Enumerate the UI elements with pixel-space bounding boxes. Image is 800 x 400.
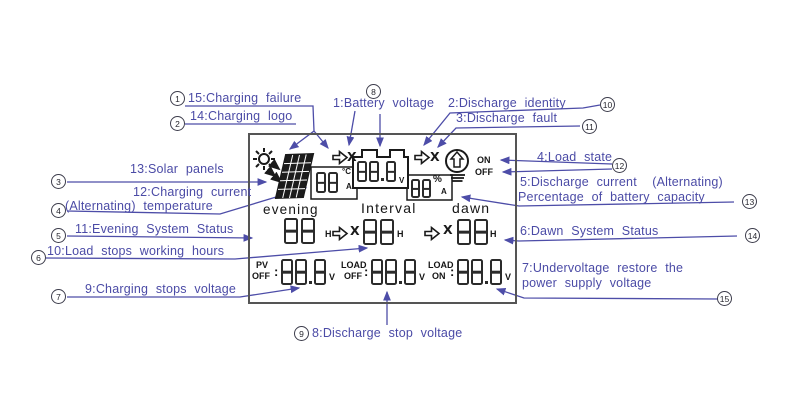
dawn-x-icon: X <box>443 222 453 237</box>
badge-15: 15 <box>717 291 732 306</box>
load-off-colon: : <box>364 264 368 279</box>
seven-segment-digit <box>457 259 469 285</box>
callout-charging-failure: 15:Charging failure <box>188 92 301 105</box>
badge-3: 3 <box>51 174 66 189</box>
seven-segment-digit <box>411 179 420 198</box>
pv-off-state: OFF <box>252 271 270 281</box>
interval-x-icon: X <box>350 223 360 238</box>
battery-volt-unit: V <box>399 176 404 185</box>
callout-discharge-current-line1: 5:Discharge current (Alternating) <box>520 176 723 189</box>
evening-hours-digits <box>284 218 315 244</box>
decimal-point <box>381 178 384 181</box>
badge-10: 10 <box>600 97 615 112</box>
seven-segment-digit <box>457 219 471 245</box>
percent-unit: % <box>433 174 442 185</box>
badge-11: 11 <box>582 119 597 134</box>
evening-hour-unit: H <box>325 229 332 239</box>
callout-discharge-fault: 3:Discharge fault <box>456 112 557 125</box>
load-off-label: LOAD <box>341 260 367 270</box>
badge-5: 5 <box>51 228 66 243</box>
callout-charging-logo: 14:Charging logo <box>190 110 292 123</box>
discharge-fault-icon: X <box>430 149 440 164</box>
callout-solar-panels: 13:Solar panels <box>130 163 224 176</box>
lcd-annotation-diagram: X X X X °C A V % A ON OFF evening Interv… <box>0 0 800 400</box>
load-on-indicator: ON <box>477 155 491 165</box>
charging-failure-icon: X <box>347 149 357 164</box>
callout-undervoltage-line2: power supply voltage <box>522 277 651 290</box>
seven-segment-digit <box>385 259 397 285</box>
callout-battery-voltage: 1:Battery voltage <box>333 97 434 110</box>
callout-charging-stop-voltage: 9:Charging stops voltage <box>85 283 236 296</box>
seven-segment-digit <box>316 172 326 193</box>
pv-volt-unit: V <box>329 272 335 282</box>
battery-percent-digits <box>411 179 431 198</box>
interval-hour-unit: H <box>397 229 404 239</box>
dawn-hour-unit: H <box>490 229 497 239</box>
charging-current-digits <box>316 172 338 193</box>
seven-segment-digit <box>284 218 298 244</box>
interval-hours-digits <box>363 219 394 245</box>
badge-6: 6 <box>31 250 46 265</box>
interval-label: Interval <box>361 200 417 216</box>
seven-segment-digit <box>301 218 315 244</box>
callout-dawn-status: 6:Dawn System Status <box>520 225 658 238</box>
decimal-point <box>485 281 488 284</box>
badge-4: 4 <box>51 203 66 218</box>
amp-unit: A <box>346 182 352 191</box>
badge-13: 13 <box>742 194 757 209</box>
load-off-volt-unit: V <box>419 272 425 282</box>
load-off-voltage-digits <box>371 259 416 285</box>
seven-segment-digit <box>380 219 394 245</box>
callout-discharge-stop-voltage: 8:Discharge stop voltage <box>312 327 462 340</box>
callout-load-stop-hours: 10:Load stops working hours <box>47 245 224 258</box>
load-on-colon: : <box>450 264 454 279</box>
seven-segment-digit <box>490 259 502 285</box>
callout-charging-current-line1: 12:Charging current <box>133 186 251 199</box>
dawn-label: dawn <box>452 200 490 216</box>
load-on-voltage-digits <box>457 259 502 285</box>
seven-segment-digit <box>369 161 379 182</box>
dawn-hours-digits <box>457 219 488 245</box>
load-on-state: ON <box>432 271 446 281</box>
load-off-state: OFF <box>344 271 362 281</box>
seven-segment-digit <box>295 259 307 285</box>
seven-segment-digit <box>357 161 367 182</box>
seven-segment-digit <box>363 219 377 245</box>
badge-2: 2 <box>170 116 185 131</box>
decimal-point <box>309 281 312 284</box>
pv-label: PV <box>256 260 268 270</box>
badge-1: 1 <box>170 91 185 106</box>
seven-segment-digit <box>371 259 383 285</box>
decimal-point <box>399 281 402 284</box>
pv-colon: : <box>274 264 278 279</box>
percent-amp-unit: A <box>441 187 447 196</box>
callout-discharge-current-line2: Percentage of battery capacity <box>518 191 705 204</box>
seven-segment-digit <box>328 172 338 193</box>
seven-segment-digit <box>422 179 431 198</box>
battery-voltage-digits <box>357 161 396 182</box>
celsius-unit: °C <box>342 167 351 176</box>
load-off-indicator: OFF <box>475 167 493 177</box>
seven-segment-digit <box>314 259 326 285</box>
seven-segment-digit <box>471 259 483 285</box>
callout-discharge-identity: 2:Discharge identity <box>448 97 566 110</box>
callout-load-state: 4:Load state <box>537 151 612 164</box>
evening-label: evening <box>263 202 319 217</box>
callout-undervoltage-line1: 7:Undervoltage restore the <box>522 262 683 275</box>
seven-segment-digit <box>386 161 396 182</box>
callout-charging-current-line2: (Alternating) temperature <box>65 200 213 213</box>
callout-evening-status: 11:Evening System Status <box>75 223 233 236</box>
badge-7: 7 <box>51 289 66 304</box>
seven-segment-digit <box>281 259 293 285</box>
badge-9: 9 <box>294 326 309 341</box>
load-on-volt-unit: V <box>505 272 511 282</box>
pv-off-voltage-digits <box>281 259 326 285</box>
seven-segment-digit <box>404 259 416 285</box>
badge-12: 12 <box>612 158 627 173</box>
seven-segment-digit <box>474 219 488 245</box>
badge-14: 14 <box>745 228 760 243</box>
